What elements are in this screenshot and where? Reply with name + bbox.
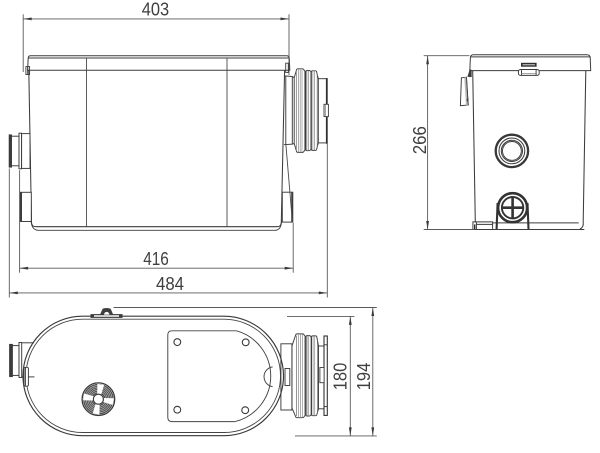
svg-text:484: 484	[156, 274, 184, 294]
svg-text:266: 266	[410, 126, 430, 154]
svg-text:194: 194	[354, 363, 374, 391]
svg-text:416: 416	[143, 249, 169, 269]
svg-text:403: 403	[142, 0, 169, 20]
svg-text:180: 180	[331, 363, 351, 391]
